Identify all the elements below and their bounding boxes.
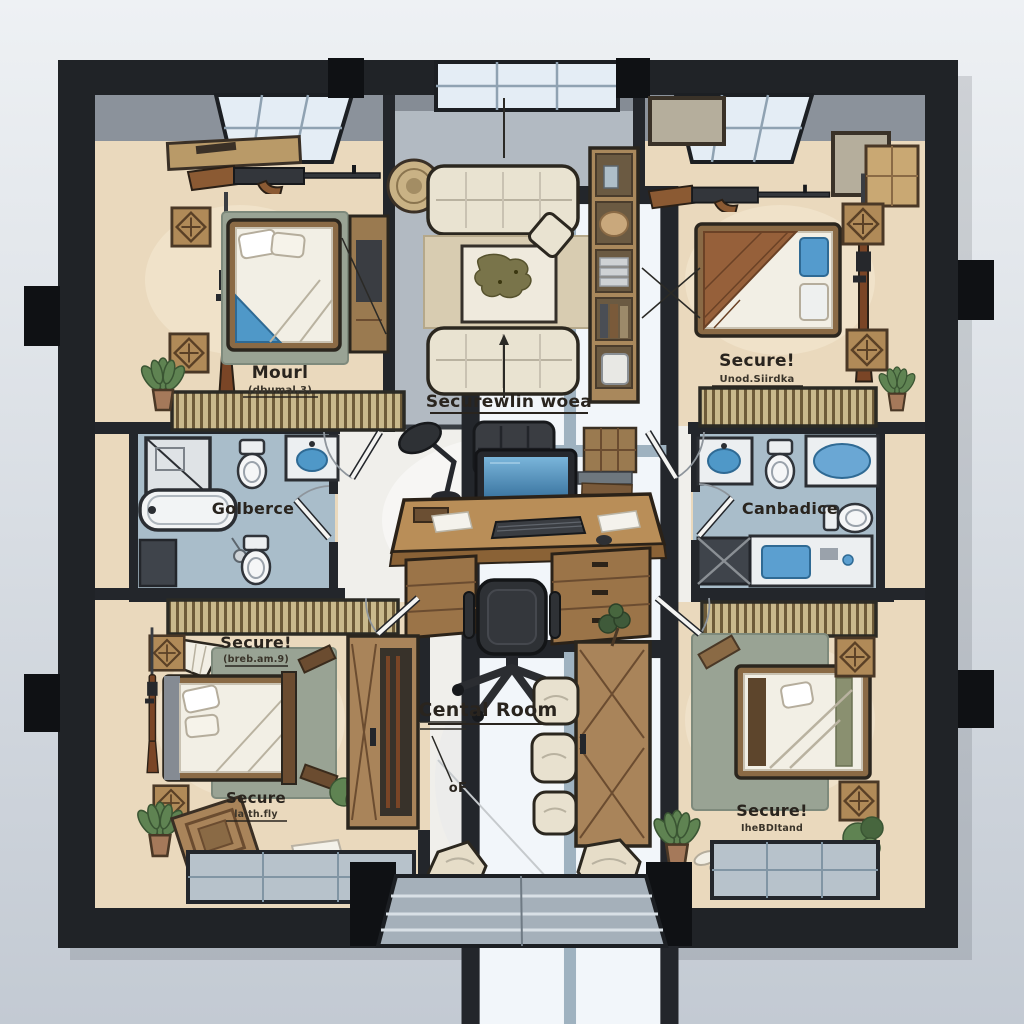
shower-stall xyxy=(146,438,210,496)
central-room-label: Cental Room xyxy=(418,699,557,721)
mouse xyxy=(596,535,612,545)
double-bed xyxy=(696,224,840,336)
top-left-bedroom-label: Mourl xyxy=(252,363,308,383)
compass-crate-icon xyxy=(172,208,210,246)
bottom-left-upper-label: Secure! xyxy=(220,633,291,652)
bottom-left-lower-sublabel: la.th.fly xyxy=(234,809,278,820)
double-bed xyxy=(164,672,296,784)
book xyxy=(578,472,632,484)
top-left-bedroom-sublabel: (dbumal.3) xyxy=(248,385,312,396)
bottom-left-lower-label: Secure xyxy=(226,789,286,807)
sideboard xyxy=(576,642,650,846)
top-right-bedroom-sublabel: Unod.Siirdka xyxy=(719,374,794,385)
bathtub xyxy=(806,436,878,486)
bath-cabinet xyxy=(140,540,176,586)
bottom-right-bedroom-sublabel: IheBDItand xyxy=(741,823,803,834)
bookshelf xyxy=(590,148,638,402)
left-bathroom-label: Golberce xyxy=(212,499,295,518)
vanity xyxy=(750,536,872,586)
glass-floor-panel xyxy=(712,842,878,898)
media-dresser xyxy=(350,216,388,352)
slatted-radiator xyxy=(702,602,876,636)
top-center-label: Securewlin woea xyxy=(426,392,592,412)
compass-crate-icon xyxy=(840,782,878,820)
crate xyxy=(698,538,750,584)
floor-plan-illustration: Mourl (dbumal.3) Securewlin woea Secure!… xyxy=(0,0,1024,1024)
sink xyxy=(286,436,338,480)
cabinet-note-label: oF xyxy=(449,781,467,796)
compass-crate-icon xyxy=(843,204,883,244)
toilet xyxy=(242,536,270,584)
entry-steps xyxy=(350,862,692,946)
coffee-table-with-map xyxy=(462,246,556,322)
compass-crate-icon xyxy=(836,638,874,676)
floor-plan-page: Mourl (dbumal.3) Securewlin woea Secure!… xyxy=(0,0,1024,1024)
slatted-radiator xyxy=(700,388,876,426)
sink xyxy=(698,438,752,484)
top-right-bedroom-label: Secure! xyxy=(719,351,795,371)
toilet xyxy=(766,440,794,488)
bottom-right-bedroom-label: Secure! xyxy=(736,801,807,820)
compass-crate-icon xyxy=(847,330,887,370)
slatted-radiator xyxy=(168,600,398,634)
compass-crate-icon xyxy=(170,334,208,372)
papers xyxy=(432,512,472,532)
wall-shelf xyxy=(167,137,300,170)
right-bathroom-label: Canbadice xyxy=(742,499,838,518)
compass-crate-icon xyxy=(150,636,185,671)
double-bed xyxy=(736,666,870,778)
bottom-left-upper-sublabel: (breb.am.9) xyxy=(223,654,289,665)
toilet xyxy=(238,440,266,488)
double-bed xyxy=(228,220,340,350)
picture-frame xyxy=(650,98,724,144)
wardrobe xyxy=(348,636,418,828)
